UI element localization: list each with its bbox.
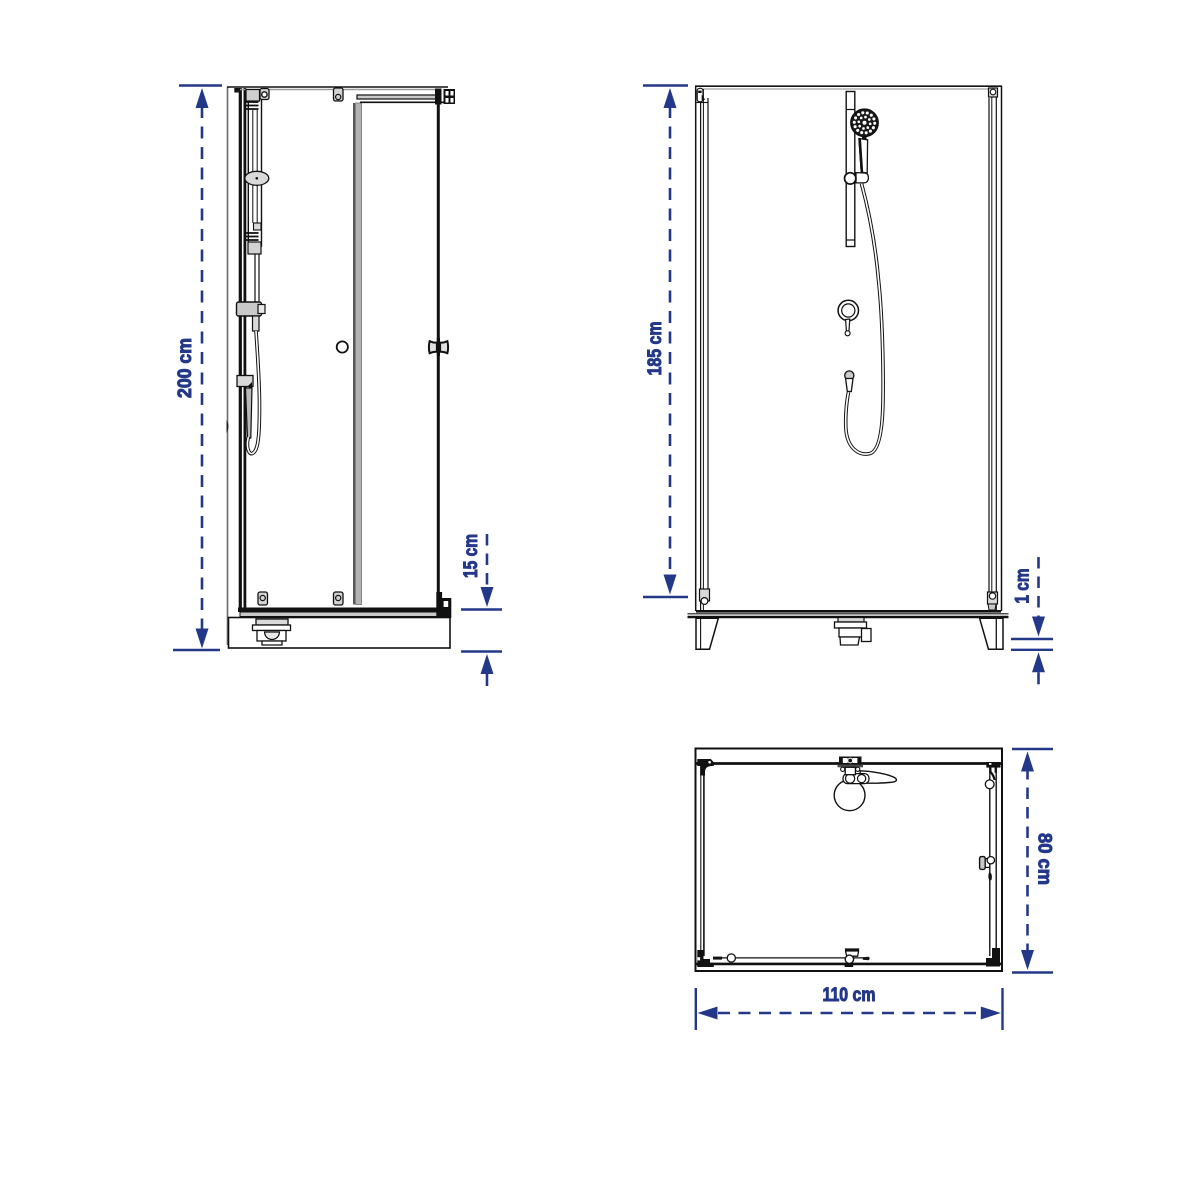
svg-text:110 cm: 110 cm (823, 985, 876, 1006)
svg-text:80 cm: 80 cm (1034, 833, 1055, 885)
svg-text:200 cm: 200 cm (175, 338, 196, 398)
svg-text:185 cm: 185 cm (645, 322, 666, 376)
svg-text:1 cm: 1 cm (1013, 569, 1034, 604)
svg-text:15 cm: 15 cm (461, 534, 482, 578)
